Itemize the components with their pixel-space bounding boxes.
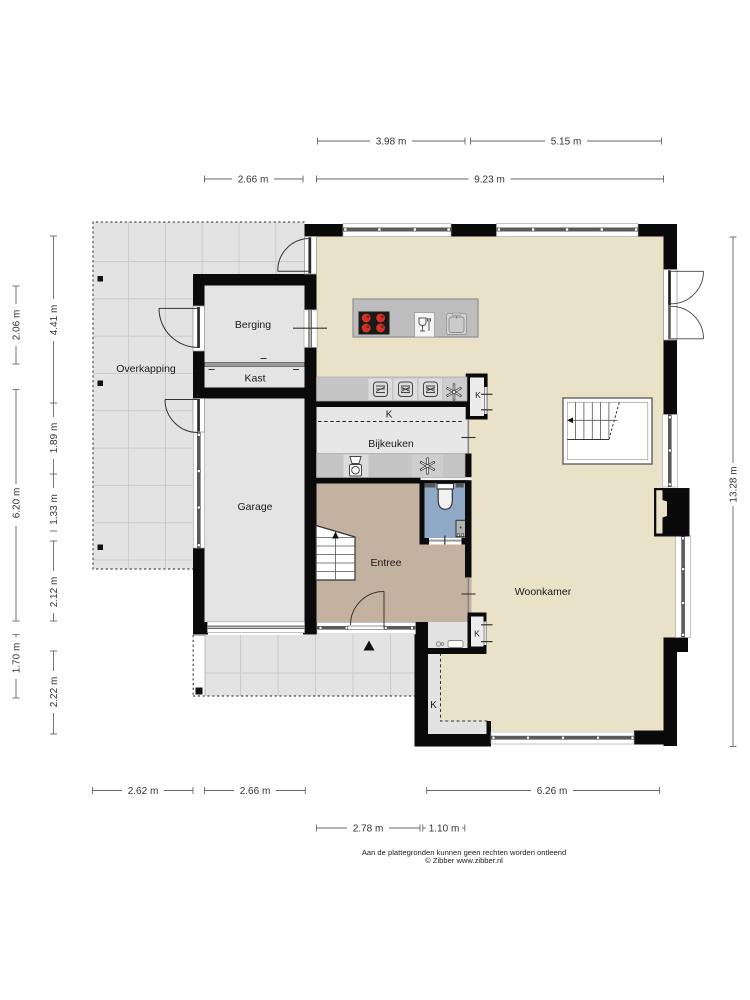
svg-text:1.70 m: 1.70 m [12, 643, 23, 674]
svg-text:Bijkeuken: Bijkeuken [368, 438, 414, 450]
svg-text:2.66 m: 2.66 m [238, 175, 269, 186]
svg-text:2.12 m: 2.12 m [49, 577, 60, 608]
svg-text:2.78 m: 2.78 m [353, 824, 384, 835]
svg-text:4.41 m: 4.41 m [49, 305, 60, 336]
svg-text:2.66 m: 2.66 m [240, 786, 271, 797]
svg-text:1.33 m: 1.33 m [49, 494, 60, 525]
svg-text:Entree: Entree [371, 557, 402, 569]
svg-text:Woonkamer: Woonkamer [515, 586, 572, 598]
svg-text:K: K [475, 390, 481, 400]
svg-text:Berging: Berging [235, 319, 271, 331]
svg-text:K: K [474, 628, 480, 638]
svg-text:3.98 m: 3.98 m [376, 137, 407, 148]
svg-text:1.10 m: 1.10 m [429, 824, 460, 835]
svg-text:© Zibber www.zibber.nl: © Zibber www.zibber.nl [425, 856, 503, 865]
svg-text:2.06 m: 2.06 m [12, 310, 23, 341]
svg-text:2.22 m: 2.22 m [49, 677, 60, 708]
svg-text:6.20 m: 6.20 m [12, 488, 23, 519]
svg-text:1.89 m: 1.89 m [49, 423, 60, 454]
svg-text:6.26 m: 6.26 m [537, 786, 568, 797]
svg-text:K: K [430, 700, 437, 711]
svg-text:Overkapping: Overkapping [116, 363, 176, 375]
svg-text:Kast: Kast [244, 373, 265, 385]
svg-text:K: K [386, 410, 393, 421]
svg-text:13.28 m: 13.28 m [729, 466, 740, 502]
svg-text:5.15 m: 5.15 m [551, 137, 582, 148]
svg-text:Garage: Garage [237, 501, 272, 513]
svg-text:2.62 m: 2.62 m [128, 786, 159, 797]
svg-text:9.23 m: 9.23 m [474, 175, 505, 186]
